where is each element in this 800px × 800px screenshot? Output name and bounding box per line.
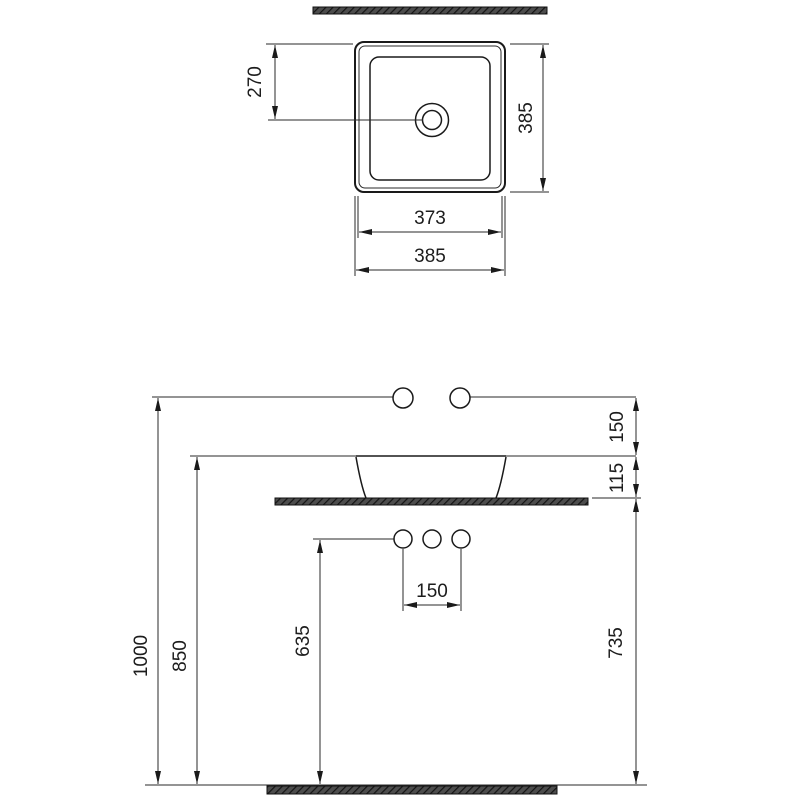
- technical-drawing-canvas: 270 385 373 385: [0, 0, 800, 800]
- dim-label-850: 850: [170, 640, 191, 672]
- dim-label-150-faucet: 150: [607, 411, 628, 443]
- basin-outer-rim: [355, 42, 505, 192]
- countertop-section-bar: [275, 498, 588, 505]
- wall-section-bar: [313, 7, 547, 14]
- dim-label-115: 115: [607, 463, 628, 493]
- dim-label-385-height: 385: [516, 102, 537, 134]
- basin-rim-inner-edge: [359, 46, 501, 188]
- basin-profile-right-side: [496, 457, 506, 498]
- dim-label-373: 373: [414, 208, 446, 229]
- dim-label-635: 635: [293, 625, 314, 657]
- waste-hole-center: [423, 530, 441, 548]
- faucet-hole-right: [450, 388, 470, 408]
- washbasin-dimension-drawing: 270 385 373 385: [0, 0, 800, 800]
- plan-view: 270 385 373 385: [245, 7, 549, 276]
- dim-label-150-spacing: 150: [416, 581, 448, 602]
- drain-inner-circle: [423, 111, 442, 130]
- dim-label-385-width: 385: [414, 246, 446, 267]
- dim-label-1000: 1000: [131, 635, 152, 677]
- front-elevation: 150 1000 850 635 150 115 735: [131, 388, 647, 794]
- faucet-hole-left: [393, 388, 413, 408]
- floor-section-bar: [267, 786, 557, 794]
- supply-hole-left: [394, 530, 412, 548]
- dim-label-270: 270: [245, 66, 266, 98]
- basin-inner-bowl: [370, 57, 490, 180]
- dim-label-735: 735: [606, 627, 627, 659]
- supply-hole-right: [452, 530, 470, 548]
- basin-profile-left-side: [356, 457, 366, 498]
